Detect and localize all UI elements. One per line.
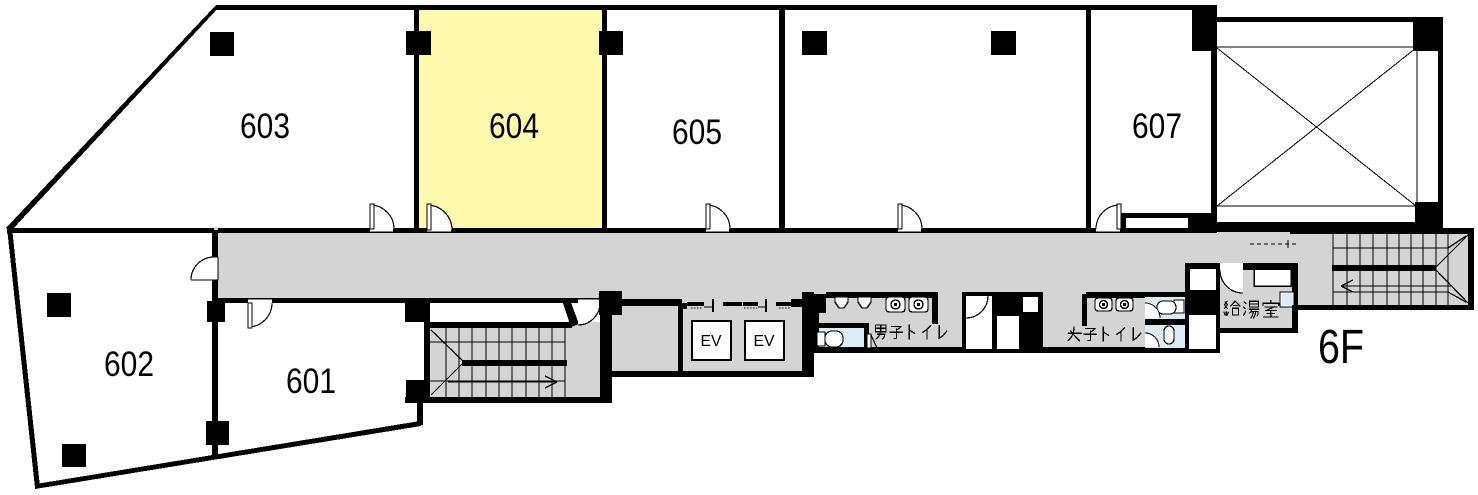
svg-text:EV: EV — [754, 333, 775, 350]
svg-text:EV: EV — [701, 333, 722, 350]
svg-text:601: 601 — [286, 362, 336, 401]
svg-text:607: 607 — [1132, 107, 1182, 146]
svg-text:604: 604 — [489, 107, 539, 146]
svg-text:605: 605 — [672, 113, 722, 152]
svg-text:6F: 6F — [1318, 321, 1364, 374]
svg-text:602: 602 — [104, 345, 154, 384]
svg-text:603: 603 — [240, 107, 290, 146]
